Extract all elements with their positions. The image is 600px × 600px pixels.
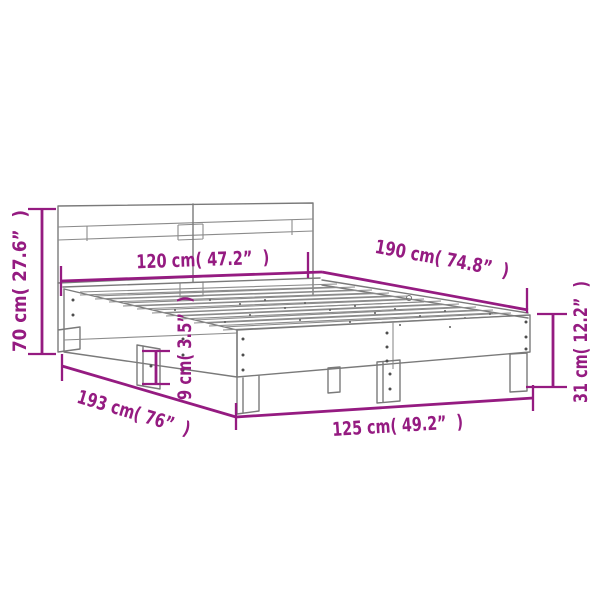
dim-height-side-ticks	[526, 314, 567, 387]
screw-dots	[72, 299, 528, 391]
dim-height-side-label: 31 cm( 12.2” )	[570, 281, 592, 403]
bed-frame-drawing	[58, 203, 530, 414]
dim-width-mattress-label: 120 cm( 47.2” )	[136, 247, 270, 274]
dim-length-mattress-label: 190 cm( 74.8” )	[373, 236, 511, 282]
dim-clearance	[142, 351, 170, 384]
side-rail-left-seam	[64, 333, 237, 340]
leg-foot-b	[377, 360, 400, 403]
dim-height-total-label: 70 cm( 27.6” )	[9, 210, 31, 352]
dim-width-total-line	[236, 398, 533, 417]
headboard-groove-top	[58, 219, 313, 227]
leg-foot-a	[328, 367, 340, 393]
product-dimension-diagram: 120 cm( 47.2” ) 190 cm( 74.8” ) 70 cm( 2…	[0, 0, 600, 600]
dim-width-total-label: 125 cm( 49.2” )	[332, 411, 464, 441]
headboard-groove-bottom	[58, 231, 313, 240]
bed-frame-diagram-canvas: 120 cm( 47.2” ) 190 cm( 74.8” ) 70 cm( 2…	[0, 0, 600, 600]
dimension-labels: 120 cm( 47.2” ) 190 cm( 74.8” ) 70 cm( 2…	[9, 210, 592, 441]
leg-foot-right	[510, 353, 527, 392]
dim-height-total	[28, 209, 56, 354]
headboard-groove-block-center	[178, 224, 203, 240]
slat-platform	[63, 278, 528, 330]
dim-clearance-label: 9 cm( 3.5” )	[174, 296, 196, 400]
headboard-center-support	[180, 282, 203, 297]
dim-height-side	[526, 314, 567, 387]
leg-front-corner	[237, 376, 259, 414]
dim-width-total	[236, 385, 533, 417]
slat	[109, 290, 372, 302]
